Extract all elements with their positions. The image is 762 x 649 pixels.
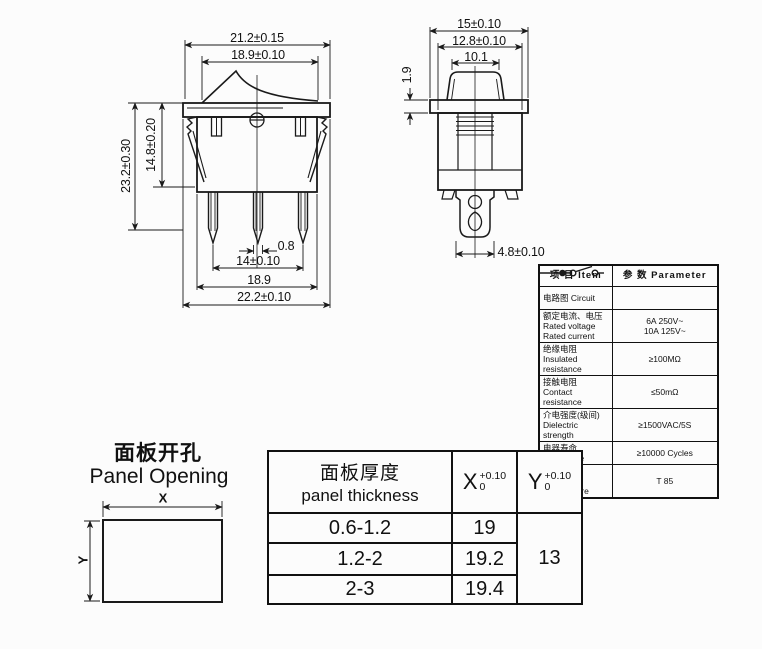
- x-value-1: 19: [452, 513, 517, 543]
- panel-table-header-thickness: 面板厚度 panel thickness: [268, 451, 452, 513]
- spec-row-rating: 额定电流、电压 Rated voltage Rated current 6A 2…: [539, 309, 718, 342]
- dim-side-flange: 1.9: [400, 67, 414, 84]
- thickness-range-3: 2-3: [268, 575, 452, 604]
- dim-side-terminal: 4.8±0.10: [498, 245, 545, 259]
- x-tolerance-lower: 0: [480, 482, 486, 493]
- spec-item-insulation: 绝缘电阻 Insulated resistance: [539, 342, 612, 375]
- dim-front-top-outer: 21.2±0.15: [230, 31, 284, 45]
- spec-value-insulation: ≥100MΩ: [612, 342, 718, 375]
- panel-thickness-label-en: panel thickness: [271, 486, 449, 506]
- dim-side-top-outer: 15±0.10: [457, 17, 501, 31]
- panel-table-header-x: X+0.100: [452, 451, 517, 513]
- x-tolerance: +0.100: [480, 471, 507, 493]
- dim-front-terminal-span: 14±0.10: [236, 254, 280, 268]
- dim-side-top-inner: 12.8±0.10: [452, 34, 506, 48]
- spec-header-parameter: 参 数 Parameter: [612, 265, 718, 286]
- panel-opening-title-cn: 面板开孔: [114, 437, 202, 467]
- x-dimension-letter: X: [463, 469, 478, 495]
- front-view: [183, 71, 330, 268]
- panel-table-row-1: 0.6-1.2 19 13: [268, 513, 582, 543]
- panel-opening-y-label: Y: [76, 556, 91, 565]
- panel-table-header-y: Y+0.100: [517, 451, 582, 513]
- thickness-range-1: 0.6-1.2: [268, 513, 452, 543]
- panel-thickness-label-cn: 面板厚度: [271, 458, 449, 485]
- panel-opening-drawing: [84, 501, 222, 602]
- technical-drawing: 21.2±0.15 18.9±0.10 23.2±0.30 14.8±0.20 …: [0, 0, 762, 649]
- panel-opening-title-en: Panel Opening: [90, 465, 229, 489]
- spec-item-dielectric: 介电强度(级间) Dielectric strength: [539, 408, 612, 441]
- spec-value-endurance: ≥10000 Cycles: [612, 441, 718, 464]
- x-value-3: 19.4: [452, 575, 517, 604]
- y-value: 13: [517, 513, 582, 604]
- dim-front-terminal-thickness: 0.8: [278, 239, 295, 253]
- dim-side-rocker: 10.1: [464, 50, 488, 64]
- front-view-dimensions: [128, 40, 330, 308]
- spec-row-dielectric: 介电强度(级间) Dielectric strength ≥1500VAC/5S: [539, 408, 718, 441]
- panel-table-header-row: 面板厚度 panel thickness X+0.100 Y+0.100: [268, 451, 582, 513]
- spec-item-rating: 额定电流、电压 Rated voltage Rated current: [539, 309, 612, 342]
- spec-item-circuit: 电路图 Circuit: [539, 286, 612, 309]
- dim-front-left-total: 23.2±0.30: [119, 139, 133, 193]
- y-tolerance-lower: 0: [545, 482, 551, 493]
- spec-item-contact: 接触电阻 Contact resistance: [539, 375, 612, 408]
- dim-front-top-inner: 18.9±0.10: [231, 48, 285, 62]
- dim-front-bottom-inner: 18.9: [247, 273, 271, 287]
- panel-opening-x-label: X: [159, 491, 168, 506]
- side-view: [430, 66, 528, 258]
- spec-row-insulation: 绝缘电阻 Insulated resistance ≥100MΩ: [539, 342, 718, 375]
- dim-front-left-body: 14.8±0.20: [144, 118, 158, 172]
- spec-value-rating: 6A 250V~ 10A 125V~: [612, 309, 718, 342]
- thickness-range-2: 1.2-2: [268, 543, 452, 575]
- x-value-2: 19.2: [452, 543, 517, 575]
- spec-value-temperature: T 85: [612, 464, 718, 498]
- y-tolerance: +0.100: [545, 471, 572, 493]
- spec-row-contact: 接触电阻 Contact resistance ≤50mΩ: [539, 375, 718, 408]
- circuit-symbol-cell: [612, 286, 718, 309]
- panel-thickness-table: 面板厚度 panel thickness X+0.100 Y+0.100 0.6…: [267, 450, 583, 605]
- spec-value-contact: ≤50mΩ: [612, 375, 718, 408]
- spec-value-dielectric: ≥1500VAC/5S: [612, 408, 718, 441]
- y-dimension-letter: Y: [528, 469, 543, 495]
- dim-front-bottom-outer: 22.2±0.10: [237, 290, 291, 304]
- spec-row-circuit: 电路图 Circuit: [539, 286, 718, 309]
